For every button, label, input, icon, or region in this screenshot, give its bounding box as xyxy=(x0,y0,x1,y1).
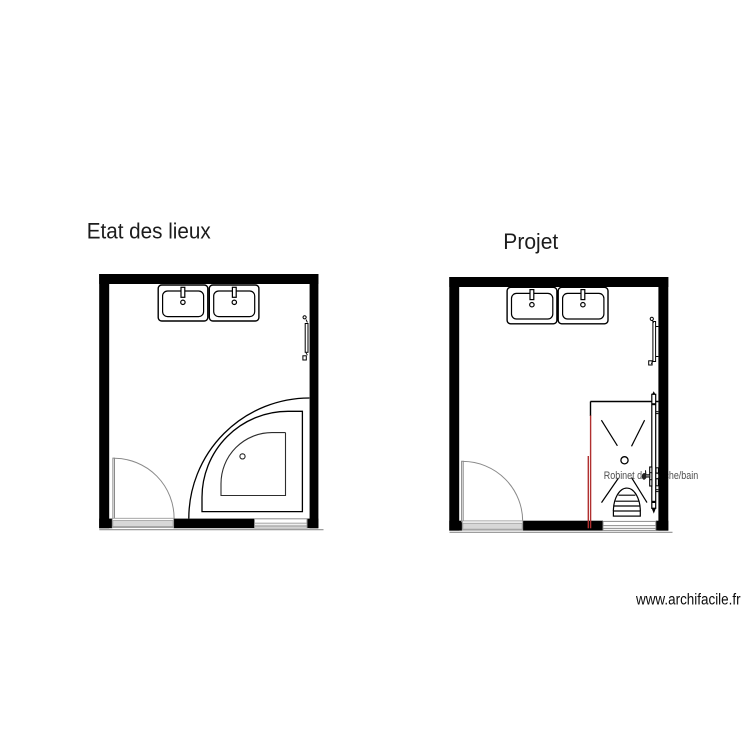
svg-text:Projet: Projet xyxy=(503,229,558,254)
svg-text:Etat des lieux: Etat des lieux xyxy=(87,219,211,244)
svg-text:www.archifacile.fr: www.archifacile.fr xyxy=(635,591,740,608)
